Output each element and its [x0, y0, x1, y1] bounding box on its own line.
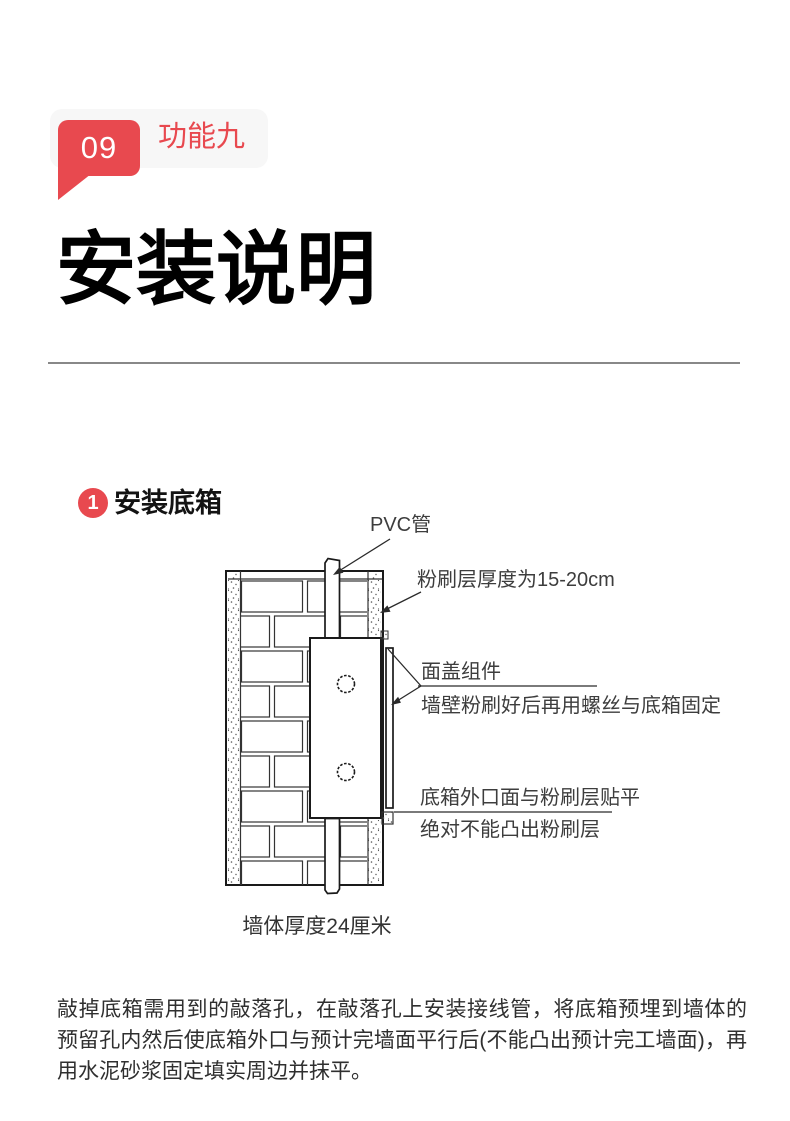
screw-hole-bottom	[338, 764, 355, 781]
label-wall-thickness: 墙体厚度24厘米	[242, 915, 391, 938]
pvc-pipe-bottom	[325, 819, 340, 894]
divider	[48, 362, 740, 364]
label-flush-line2: 绝对不能凸出粉刷层	[420, 818, 600, 841]
leader-pvc	[335, 539, 390, 574]
label-cover-title: 面盖组件	[421, 660, 501, 683]
number-badge-tail	[58, 174, 91, 200]
label-pvc-pipe: PVC管	[370, 513, 431, 536]
number-badge-text: 09	[81, 130, 117, 166]
screw-hole-top	[338, 676, 355, 693]
plaster-band-right-upper	[368, 573, 381, 638]
page-title: 安装说明	[56, 224, 376, 316]
plaster-band-left	[228, 573, 240, 883]
page: 功能九 09 安装说明 1 安装底箱	[0, 0, 790, 1121]
bottom-box	[310, 638, 381, 818]
instruction-paragraph: 敲掉底箱需用到的敲落孔，在敲落孔上安装接线管，将底箱预埋到墙体的预留孔内然后使底…	[57, 994, 747, 1087]
function-pill-label: 功能九	[158, 121, 245, 153]
plaster-notch-top	[381, 631, 388, 639]
plaster-notch-bottom	[382, 812, 393, 824]
label-flush-line1: 底箱外口面与粉刷层贴平	[420, 786, 640, 809]
label-cover-desc: 墙壁粉刷好后再用螺丝与底箱固定	[421, 694, 721, 717]
plaster-band-right-lower	[368, 820, 381, 883]
label-plaster-thickness: 粉刷层厚度为15-20cm	[417, 568, 615, 591]
face-cover-plate	[386, 648, 393, 808]
number-badge: 09	[58, 120, 140, 176]
installation-diagram: PVC管 粉刷层厚度为15-20cm 面盖组件 墙壁粉刷好后再用螺丝与底箱固定 …	[0, 500, 790, 950]
